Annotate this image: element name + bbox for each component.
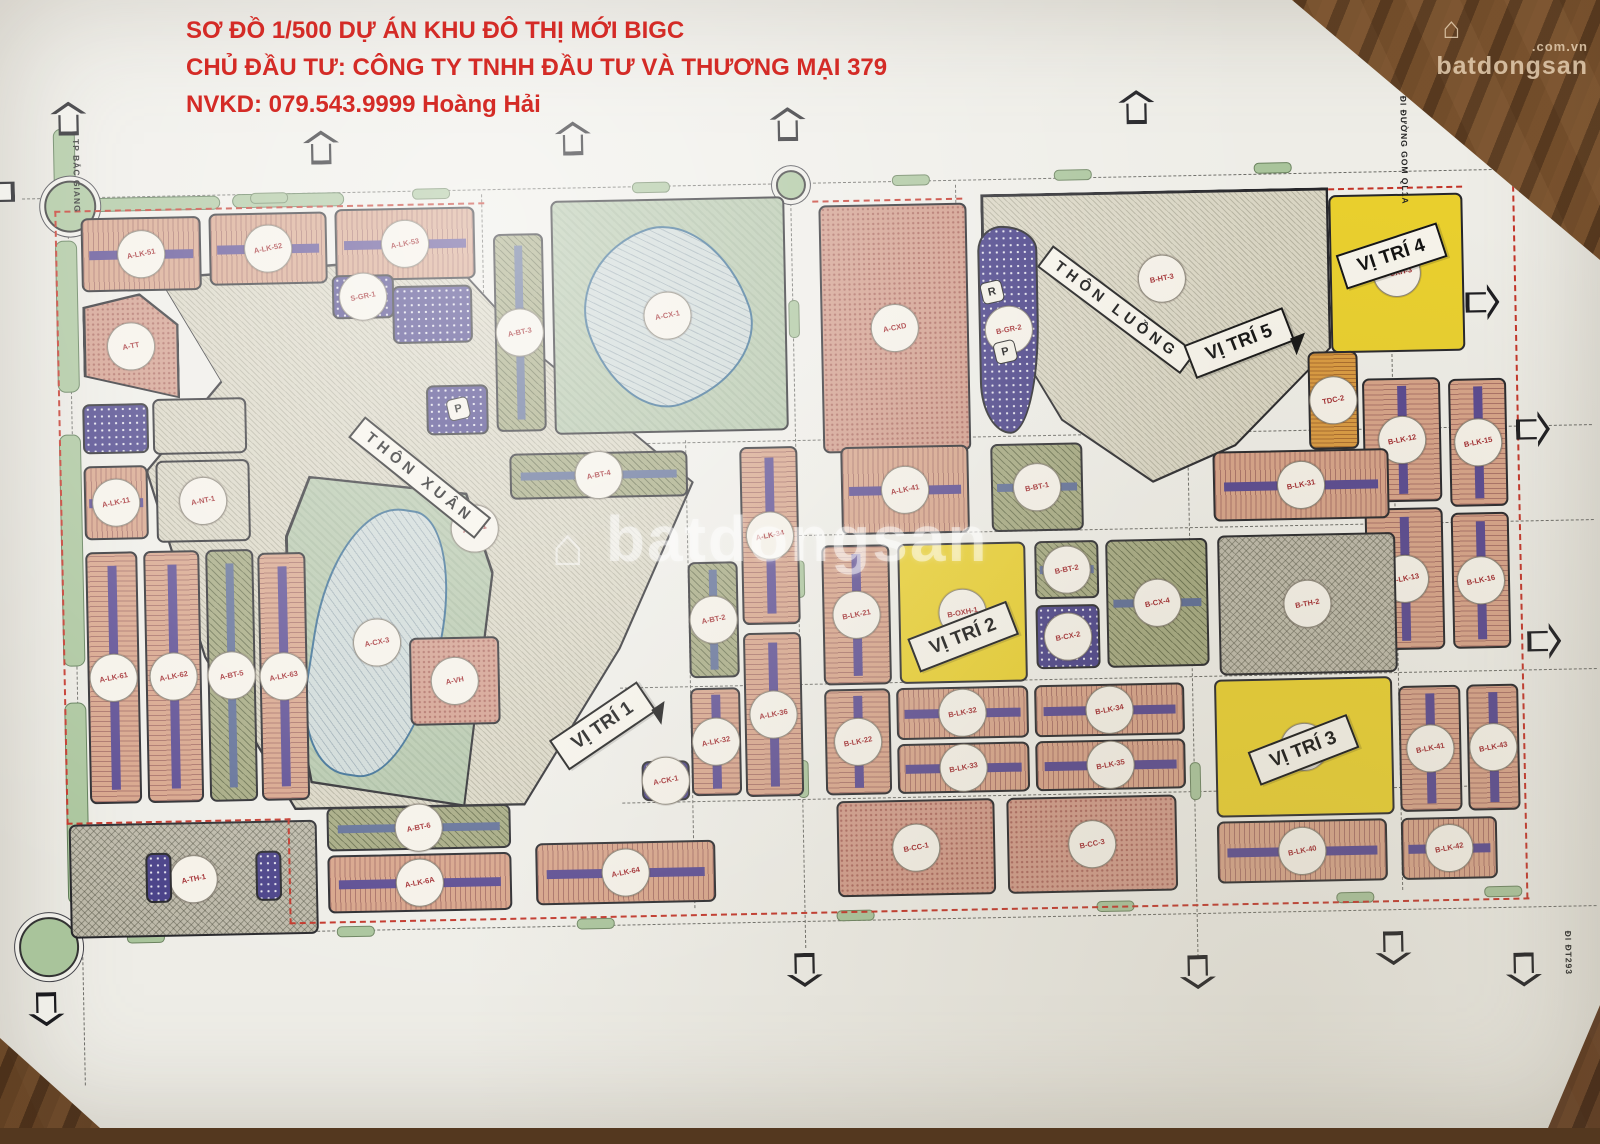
- road-arrow: [0, 174, 15, 211]
- parcel-block: [82, 403, 149, 454]
- parcel-block: [145, 853, 172, 904]
- road-name-label: ĐI ĐT293: [1563, 931, 1574, 976]
- road-arrow: [50, 101, 87, 136]
- road-arrow: [1527, 623, 1562, 660]
- road-median-dash: [250, 192, 288, 204]
- road-arrow: [1505, 952, 1542, 987]
- road-arrow: [1179, 955, 1216, 990]
- photo-of-planning-map: { "header": { "line1": "SƠ ĐỒ 1/500 DỰ Á…: [0, 0, 1600, 1128]
- road-median-dash: [1484, 886, 1522, 898]
- road-median-dash: [412, 188, 450, 200]
- parcel-block: [255, 850, 282, 901]
- road-arrow: [786, 953, 823, 988]
- watermark-top-right: ⌂ .com.vn batdongsan: [1436, 14, 1588, 79]
- road-median-dash: [892, 174, 930, 186]
- road-arrow: [28, 992, 65, 1027]
- road-median-dash: [337, 926, 375, 938]
- header-line-project: SƠ ĐỒ 1/500 DỰ ÁN KHU ĐÔ THỊ MỚI BIGC: [186, 12, 887, 49]
- header-line-investor: CHỦ ĐẦU TƯ: CÔNG TY TNHH ĐẦU TƯ VÀ THƯƠN…: [186, 49, 887, 86]
- roundabout: [776, 170, 807, 201]
- road-arrow: [1465, 284, 1500, 321]
- road-median-dash: [577, 918, 615, 930]
- road-name-label: ĐI ĐƯỜNG GOM QL1A: [1398, 96, 1410, 205]
- parcel-block: [152, 397, 247, 455]
- listing-header-text: SƠ ĐỒ 1/500 DỰ ÁN KHU ĐÔ THỊ MỚI BIGC CH…: [186, 12, 887, 124]
- road-median-dash: [788, 300, 800, 338]
- header-line-contact: NVKD: 079.543.9999 Hoàng Hải: [186, 86, 887, 123]
- road-arrow: [1516, 411, 1551, 448]
- road-median-dash: [632, 182, 670, 194]
- road-arrow: [303, 130, 340, 165]
- road-arrow: [555, 121, 592, 156]
- road-arrow: [1118, 90, 1155, 125]
- project-boundary: [812, 198, 962, 203]
- house-icon: ⌂: [551, 517, 586, 577]
- road-median-dash: [1190, 762, 1202, 800]
- parcel-block: [392, 285, 473, 345]
- watermark-center: ⌂ batdongsan: [551, 502, 988, 578]
- road-median-dash: [1054, 169, 1092, 181]
- road-median-dash: [1254, 162, 1292, 174]
- road-arrow: [1375, 931, 1412, 966]
- watermark-brand: batdongsan: [1436, 54, 1588, 79]
- project-boundary: [1328, 186, 1462, 191]
